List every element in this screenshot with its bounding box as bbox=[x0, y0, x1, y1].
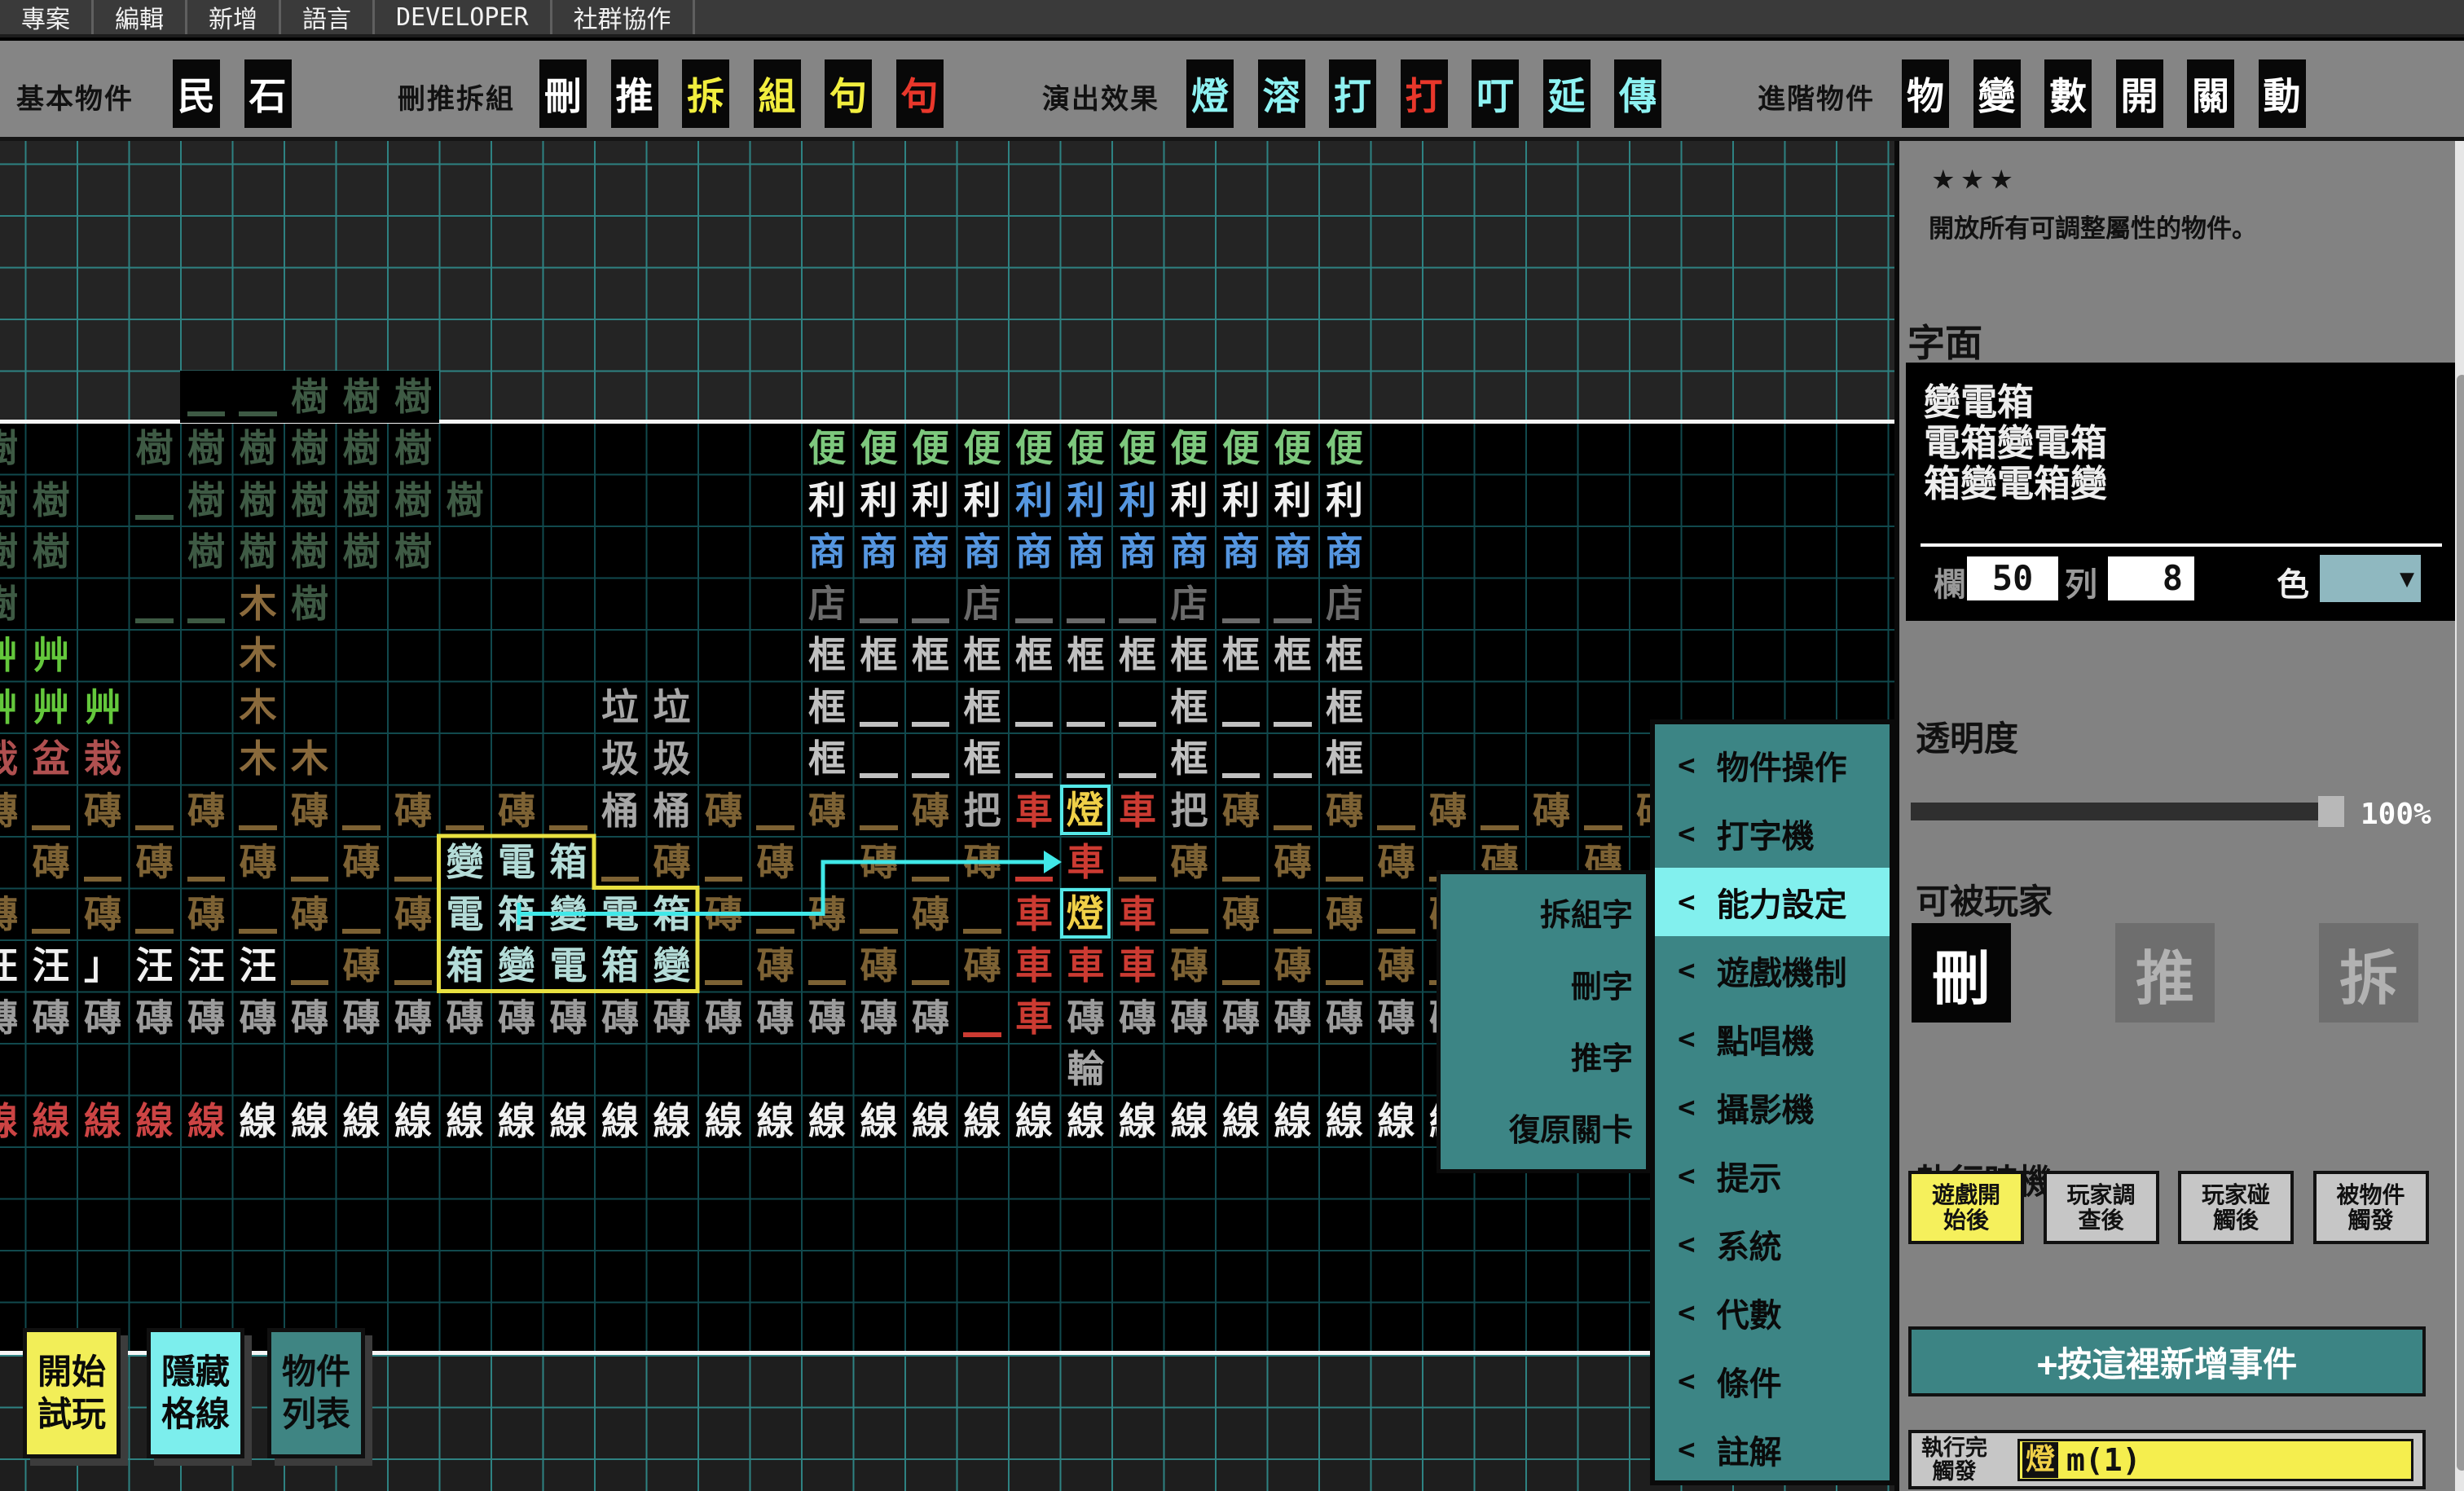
map-tile-＿[interactable]: ＿ bbox=[1577, 785, 1630, 837]
map-tile-線[interactable]: 線 bbox=[232, 1095, 284, 1147]
context-menu-item-物件操作[interactable]: <物件操作 bbox=[1655, 731, 1890, 799]
map-tile-便[interactable]: 便 bbox=[853, 422, 905, 474]
map-tile-樹[interactable]: 樹 bbox=[232, 526, 284, 578]
map-tile-線[interactable]: 線 bbox=[336, 1095, 388, 1147]
toolbar-button-燈-20[interactable]: 燈 bbox=[1186, 59, 1234, 128]
map-tile-便[interactable]: 便 bbox=[1215, 422, 1267, 474]
map-tile-磚[interactable]: 磚 bbox=[1215, 888, 1267, 940]
map-tile-框[interactable]: 框 bbox=[1111, 629, 1164, 681]
map-tile-框[interactable]: 框 bbox=[801, 732, 853, 785]
context-menu-item-系統[interactable]: <系統 bbox=[1655, 1210, 1890, 1278]
map-tile-利[interactable]: 利 bbox=[1060, 474, 1112, 526]
map-tile-車[interactable]: 車 bbox=[1111, 785, 1164, 837]
map-tile-商[interactable]: 商 bbox=[1111, 526, 1164, 578]
map-tile-磚[interactable]: 磚 bbox=[0, 785, 25, 837]
map-tile-磚[interactable]: 磚 bbox=[439, 992, 491, 1044]
context-menu-item-打字機[interactable]: <打字機 bbox=[1655, 799, 1890, 868]
map-tile-圾[interactable]: 圾 bbox=[646, 732, 698, 785]
map-tile-＿[interactable]: ＿ bbox=[25, 888, 77, 940]
map-tile-磚[interactable]: 磚 bbox=[697, 992, 750, 1044]
map-tile-線[interactable]: 線 bbox=[439, 1095, 491, 1147]
map-tile-＿[interactable]: ＿ bbox=[387, 836, 439, 888]
map-tile-磚[interactable]: 磚 bbox=[1111, 992, 1164, 1044]
map-tile-利[interactable]: 利 bbox=[904, 474, 957, 526]
map-tile-樹[interactable]: 樹 bbox=[180, 526, 232, 578]
map-tile-車[interactable]: 車 bbox=[1060, 836, 1112, 888]
timing-button-被物件觸發[interactable]: 被物件觸發 bbox=[2313, 1171, 2429, 1244]
map-tile-汪[interactable]: 汪 bbox=[0, 939, 25, 992]
toolbar-button-物-30[interactable]: 物 bbox=[1902, 59, 1949, 128]
menu-item-1[interactable]: 編輯 bbox=[94, 0, 187, 34]
map-tile-變[interactable]: 變 bbox=[491, 939, 543, 992]
panel-scrollbar-thumb[interactable] bbox=[2457, 375, 2464, 1471]
toolbar-button-推-11[interactable]: 推 bbox=[611, 59, 658, 128]
map-tile-商[interactable]: 商 bbox=[853, 526, 905, 578]
map-tile-＿[interactable]: ＿ bbox=[1267, 681, 1319, 733]
map-tile-磚[interactable]: 磚 bbox=[232, 836, 284, 888]
map-tile-＿[interactable]: ＿ bbox=[129, 785, 181, 837]
map-tile-商[interactable]: 商 bbox=[1008, 526, 1060, 578]
toolbar-button-石-01[interactable]: 石 bbox=[244, 59, 292, 128]
face-text-value[interactable]: 變電箱 電箱變電箱 箱變電箱變 bbox=[1924, 382, 2457, 504]
map-tile-樹[interactable]: 樹 bbox=[232, 474, 284, 526]
toolbar-button-民-00[interactable]: 民 bbox=[173, 59, 220, 128]
map-canvas[interactable]: ＿＿樹樹樹樹樹樹樹樹樹樹便便便便便便便便便便便樹樹＿樹樹樹樹樹樹利利利利利利利利… bbox=[0, 141, 1894, 1491]
map-tile-樹[interactable]: 樹 bbox=[25, 526, 77, 578]
color-dropdown[interactable]: ▼ bbox=[2320, 555, 2421, 602]
map-tile-磚[interactable]: 磚 bbox=[957, 836, 1009, 888]
map-tile-桶[interactable]: 桶 bbox=[594, 785, 646, 837]
map-tile-框[interactable]: 框 bbox=[1318, 629, 1371, 681]
map-tile-磚[interactable]: 磚 bbox=[543, 992, 595, 1044]
menu-item-2[interactable]: 新增 bbox=[187, 0, 281, 34]
map-tile-＿[interactable]: ＿ bbox=[957, 888, 1009, 940]
map-tile-磚[interactable]: 磚 bbox=[1318, 992, 1371, 1044]
context-menu-item-提示[interactable]: <提示 bbox=[1655, 1141, 1890, 1210]
map-tile-栽[interactable]: 栽 bbox=[77, 732, 129, 785]
map-tile-磚[interactable]: 磚 bbox=[129, 836, 181, 888]
toolbar-button-動-35[interactable]: 動 bbox=[2259, 59, 2306, 128]
map-tile-＿[interactable]: ＿ bbox=[1008, 578, 1060, 630]
map-tile-＿[interactable]: ＿ bbox=[1008, 836, 1060, 888]
map-tile-車[interactable]: 車 bbox=[1008, 992, 1060, 1044]
map-tile-＿[interactable]: ＿ bbox=[697, 836, 750, 888]
map-tile-＿[interactable]: ＿ bbox=[904, 732, 957, 785]
map-tile-垃[interactable]: 垃 bbox=[646, 681, 698, 733]
map-tile-商[interactable]: 商 bbox=[957, 526, 1009, 578]
toolbar-button-刪-10[interactable]: 刪 bbox=[539, 59, 587, 128]
map-tile-線[interactable]: 線 bbox=[697, 1095, 750, 1147]
submenu-item-復原關卡[interactable]: 復原關卡 bbox=[1441, 1091, 1646, 1163]
map-tile-＿[interactable]: ＿ bbox=[1111, 836, 1164, 888]
map-tile-框[interactable]: 框 bbox=[801, 629, 853, 681]
context-menu-item-條件[interactable]: <條件 bbox=[1655, 1347, 1890, 1415]
rows-input[interactable]: 8 bbox=[2108, 556, 2194, 600]
map-tile-＿[interactable]: ＿ bbox=[129, 888, 181, 940]
context-menu-item-攝影機[interactable]: <攝影機 bbox=[1655, 1073, 1890, 1141]
map-tile-樹[interactable]: 樹 bbox=[387, 526, 439, 578]
map-tile-變[interactable]: 變 bbox=[439, 836, 491, 888]
map-tile-利[interactable]: 利 bbox=[1215, 474, 1267, 526]
map-tile-磚[interactable]: 磚 bbox=[801, 888, 853, 940]
map-tile-利[interactable]: 利 bbox=[1267, 474, 1319, 526]
map-tile-箱[interactable]: 箱 bbox=[543, 836, 595, 888]
map-tile-磚[interactable]: 磚 bbox=[1267, 992, 1319, 1044]
face-text-box[interactable]: 變電箱 電箱變電箱 箱變電箱變 欄 50 列 8 色 ▼ bbox=[1906, 363, 2457, 621]
toolbar-button-打-22[interactable]: 打 bbox=[1329, 59, 1376, 128]
map-tile-樹[interactable]: 樹 bbox=[387, 422, 439, 474]
map-tile-磚[interactable]: 磚 bbox=[957, 939, 1009, 992]
toolbar-button-句-15[interactable]: 句 bbox=[896, 59, 944, 128]
map-tile-樹[interactable]: 樹 bbox=[284, 371, 336, 423]
map-tile-磚[interactable]: 磚 bbox=[853, 836, 905, 888]
submenu-item-推字[interactable]: 推字 bbox=[1441, 1019, 1646, 1091]
map-tile-車[interactable]: 車 bbox=[1111, 939, 1164, 992]
menu-item-4[interactable]: DEVELOPER bbox=[375, 0, 552, 34]
map-tile-汪[interactable]: 汪 bbox=[25, 939, 77, 992]
map-tile-磚[interactable]: 磚 bbox=[853, 939, 905, 992]
map-tile-線[interactable]: 線 bbox=[853, 1095, 905, 1147]
map-tile-＿[interactable]: ＿ bbox=[904, 681, 957, 733]
map-tile-汪[interactable]: 汪 bbox=[180, 939, 232, 992]
map-tile-磚[interactable]: 磚 bbox=[904, 785, 957, 837]
map-tile-栽[interactable]: 栽 bbox=[0, 732, 25, 785]
map-tile-磚[interactable]: 磚 bbox=[77, 785, 129, 837]
opacity-slider-thumb[interactable] bbox=[2318, 796, 2344, 827]
map-tile-＿[interactable]: ＿ bbox=[180, 836, 232, 888]
map-tile-樹[interactable]: 樹 bbox=[336, 474, 388, 526]
map-tile-樹[interactable]: 樹 bbox=[0, 526, 25, 578]
map-tile-線[interactable]: 線 bbox=[1164, 1095, 1216, 1147]
map-tile-輪[interactable]: 輪 bbox=[1060, 1043, 1112, 1095]
map-tile-線[interactable]: 線 bbox=[129, 1095, 181, 1147]
map-tile-磚[interactable]: 磚 bbox=[1422, 785, 1474, 837]
map-tile-線[interactable]: 線 bbox=[904, 1095, 957, 1147]
map-tile-店[interactable]: 店 bbox=[801, 578, 853, 630]
map-tile-樹[interactable]: 樹 bbox=[284, 578, 336, 630]
map-tile-便[interactable]: 便 bbox=[1060, 422, 1112, 474]
map-tile-樹[interactable]: 樹 bbox=[232, 422, 284, 474]
map-tile-＿[interactable]: ＿ bbox=[439, 785, 491, 837]
timing-button-玩家調查後[interactable]: 玩家調查後 bbox=[2044, 1171, 2159, 1244]
map-tile-磚[interactable]: 磚 bbox=[1267, 836, 1319, 888]
map-tile-車[interactable]: 車 bbox=[1008, 939, 1060, 992]
map-tile-商[interactable]: 商 bbox=[1267, 526, 1319, 578]
map-tile-桶[interactable]: 桶 bbox=[646, 785, 698, 837]
ability-button-拆[interactable]: 拆 bbox=[2319, 923, 2418, 1023]
map-tile-框[interactable]: 框 bbox=[801, 681, 853, 733]
map-tile-＿[interactable]: ＿ bbox=[750, 785, 802, 837]
map-tile-木[interactable]: 木 bbox=[284, 732, 336, 785]
map-tile-木[interactable]: 木 bbox=[232, 732, 284, 785]
after-exec-field[interactable]: 燈 m(1) bbox=[2017, 1439, 2413, 1481]
map-tile-商[interactable]: 商 bbox=[1164, 526, 1216, 578]
map-tile-框[interactable]: 框 bbox=[1267, 629, 1319, 681]
opacity-slider-track[interactable] bbox=[1911, 803, 2320, 820]
map-tile-磚[interactable]: 磚 bbox=[387, 992, 439, 1044]
map-tile-＿[interactable]: ＿ bbox=[1267, 578, 1319, 630]
map-tile-磚[interactable]: 磚 bbox=[1164, 992, 1216, 1044]
map-tile-垃[interactable]: 垃 bbox=[594, 681, 646, 733]
map-tile-磚[interactable]: 磚 bbox=[904, 992, 957, 1044]
map-tile-利[interactable]: 利 bbox=[1318, 474, 1371, 526]
map-tile-商[interactable]: 商 bbox=[1060, 526, 1112, 578]
map-button-開始試玩[interactable]: 開始試玩 bbox=[23, 1328, 121, 1458]
map-tile-磚[interactable]: 磚 bbox=[646, 992, 698, 1044]
map-tile-線[interactable]: 線 bbox=[543, 1095, 595, 1147]
map-tile-磚[interactable]: 磚 bbox=[180, 785, 232, 837]
map-tile-＿[interactable]: ＿ bbox=[232, 888, 284, 940]
map-tile-樹[interactable]: 樹 bbox=[387, 371, 439, 423]
map-tile-車[interactable]: 車 bbox=[1111, 888, 1164, 940]
map-tile-便[interactable]: 便 bbox=[1111, 422, 1164, 474]
map-tile-框[interactable]: 框 bbox=[1060, 629, 1112, 681]
map-tile-樹[interactable]: 樹 bbox=[439, 474, 491, 526]
map-tile-便[interactable]: 便 bbox=[801, 422, 853, 474]
map-tile-樹[interactable]: 樹 bbox=[387, 474, 439, 526]
map-tile-磚[interactable]: 磚 bbox=[180, 992, 232, 1044]
menu-item-0[interactable]: 專案 bbox=[0, 0, 94, 34]
map-tile-樹[interactable]: 樹 bbox=[180, 474, 232, 526]
map-tile-樹[interactable]: 樹 bbox=[336, 371, 388, 423]
toolbar-button-溶-21[interactable]: 溶 bbox=[1258, 59, 1305, 128]
toolbar-button-延-25[interactable]: 延 bbox=[1543, 59, 1591, 128]
map-tile-樹[interactable]: 樹 bbox=[284, 422, 336, 474]
map-tile-＿[interactable]: ＿ bbox=[77, 836, 129, 888]
map-tile-樹[interactable]: 樹 bbox=[129, 422, 181, 474]
map-tile-＿[interactable]: ＿ bbox=[957, 992, 1009, 1044]
map-tile-艸[interactable]: 艸 bbox=[0, 629, 25, 681]
map-tile-艸[interactable]: 艸 bbox=[25, 681, 77, 733]
map-tile-＿[interactable]: ＿ bbox=[25, 785, 77, 837]
timing-button-遊戲開始後[interactable]: 遊戲開始後 bbox=[1908, 1171, 2024, 1244]
toolbar-button-變-31[interactable]: 變 bbox=[1973, 59, 2021, 128]
map-tile-＿[interactable]: ＿ bbox=[697, 939, 750, 992]
map-tile-＿[interactable]: ＿ bbox=[232, 371, 284, 423]
map-tile-樹[interactable]: 樹 bbox=[25, 474, 77, 526]
map-tile-磚[interactable]: 磚 bbox=[284, 785, 336, 837]
map-tile-磚[interactable]: 磚 bbox=[1164, 939, 1216, 992]
map-tile-磚[interactable]: 磚 bbox=[594, 992, 646, 1044]
map-tile-＿[interactable]: ＿ bbox=[1474, 785, 1526, 837]
map-tile-店[interactable]: 店 bbox=[1164, 578, 1216, 630]
map-tile-盆[interactable]: 盆 bbox=[25, 732, 77, 785]
map-tile-線[interactable]: 線 bbox=[750, 1095, 802, 1147]
submenu-item-刪字[interactable]: 刪字 bbox=[1441, 948, 1646, 1019]
context-menu-item-點唱機[interactable]: <點唱機 bbox=[1655, 1005, 1890, 1073]
map-tile-磚[interactable]: 磚 bbox=[750, 992, 802, 1044]
map-tile-變[interactable]: 變 bbox=[543, 888, 595, 940]
map-tile-＿[interactable]: ＿ bbox=[904, 836, 957, 888]
map-tile-線[interactable]: 線 bbox=[387, 1095, 439, 1147]
map-tile-利[interactable]: 利 bbox=[1008, 474, 1060, 526]
map-tile-線[interactable]: 線 bbox=[180, 1095, 232, 1147]
map-tile-＿[interactable]: ＿ bbox=[1111, 578, 1164, 630]
map-button-物件列表[interactable]: 物件列表 bbox=[267, 1328, 365, 1458]
map-tile-磚[interactable]: 磚 bbox=[491, 785, 543, 837]
map-tile-磚[interactable]: 磚 bbox=[853, 992, 905, 1044]
map-tile-＿[interactable]: ＿ bbox=[853, 578, 905, 630]
map-tile-＿[interactable]: ＿ bbox=[1111, 732, 1164, 785]
context-menu-item-遊戲機制[interactable]: <遊戲機制 bbox=[1655, 936, 1890, 1005]
toolbar-button-傳-26[interactable]: 傳 bbox=[1614, 59, 1661, 128]
map-tile-＿[interactable]: ＿ bbox=[853, 785, 905, 837]
map-tile-＿[interactable]: ＿ bbox=[853, 732, 905, 785]
map-tile-樹[interactable]: 樹 bbox=[180, 422, 232, 474]
map-tile-＿[interactable]: ＿ bbox=[180, 578, 232, 630]
map-tile-＿[interactable]: ＿ bbox=[1371, 785, 1423, 837]
map-tile-磚[interactable]: 磚 bbox=[697, 785, 750, 837]
toolbar-button-數-32[interactable]: 數 bbox=[2044, 59, 2092, 128]
map-tile-＿[interactable]: ＿ bbox=[1318, 939, 1371, 992]
map-tile-燈[interactable]: 燈 bbox=[1060, 888, 1111, 939]
map-tile-利[interactable]: 利 bbox=[1111, 474, 1164, 526]
map-tile-艸[interactable]: 艸 bbox=[77, 681, 129, 733]
menu-item-5[interactable]: 社群協作 bbox=[552, 0, 695, 34]
map-tile-樹[interactable]: 樹 bbox=[336, 422, 388, 474]
map-tile-把[interactable]: 把 bbox=[957, 785, 1009, 837]
map-tile-＿[interactable]: ＿ bbox=[1215, 681, 1267, 733]
map-tile-＿[interactable]: ＿ bbox=[543, 785, 595, 837]
map-tile-線[interactable]: 線 bbox=[1318, 1095, 1371, 1147]
map-tile-樹[interactable]: 樹 bbox=[336, 526, 388, 578]
map-tile-＿[interactable]: ＿ bbox=[1111, 681, 1164, 733]
map-tile-＿[interactable]: ＿ bbox=[904, 578, 957, 630]
map-tile-把[interactable]: 把 bbox=[1164, 785, 1216, 837]
map-tile-框[interactable]: 框 bbox=[853, 629, 905, 681]
map-tile-利[interactable]: 利 bbox=[801, 474, 853, 526]
map-tile-磚[interactable]: 磚 bbox=[646, 836, 698, 888]
map-tile-樹[interactable]: 樹 bbox=[0, 578, 25, 630]
map-tile-磚[interactable]: 磚 bbox=[0, 888, 25, 940]
map-tile-圾[interactable]: 圾 bbox=[594, 732, 646, 785]
map-tile-磚[interactable]: 磚 bbox=[77, 888, 129, 940]
map-tile-＿[interactable]: ＿ bbox=[129, 474, 181, 526]
toolbar-button-開-33[interactable]: 開 bbox=[2116, 59, 2163, 128]
map-tile-磚[interactable]: 磚 bbox=[336, 836, 388, 888]
map-tile-磚[interactable]: 磚 bbox=[387, 785, 439, 837]
timing-button-玩家碰觸後[interactable]: 玩家碰觸後 bbox=[2178, 1171, 2294, 1244]
map-tile-線[interactable]: 線 bbox=[1215, 1095, 1267, 1147]
toolbar-button-叮-24[interactable]: 叮 bbox=[1472, 59, 1519, 128]
context-menu-item-註解[interactable]: <註解 bbox=[1655, 1415, 1890, 1484]
map-tile-艸[interactable]: 艸 bbox=[0, 681, 25, 733]
map-tile-電[interactable]: 電 bbox=[594, 888, 646, 940]
map-tile-店[interactable]: 店 bbox=[957, 578, 1009, 630]
columns-input[interactable]: 50 bbox=[1967, 556, 2058, 600]
map-tile-＿[interactable]: ＿ bbox=[904, 939, 957, 992]
map-tile-磚[interactable]: 磚 bbox=[904, 888, 957, 940]
map-tile-汪[interactable]: 汪 bbox=[129, 939, 181, 992]
map-tile-磚[interactable]: 磚 bbox=[801, 785, 853, 837]
map-tile-磚[interactable]: 磚 bbox=[1371, 939, 1423, 992]
map-tile-磚[interactable]: 磚 bbox=[284, 992, 336, 1044]
map-tile-＿[interactable]: ＿ bbox=[336, 785, 388, 837]
map-tile-線[interactable]: 線 bbox=[1267, 1095, 1319, 1147]
map-tile-車[interactable]: 車 bbox=[1008, 888, 1060, 940]
map-tile-線[interactable]: 線 bbox=[25, 1095, 77, 1147]
map-tile-便[interactable]: 便 bbox=[904, 422, 957, 474]
map-tile-磚[interactable]: 磚 bbox=[1525, 785, 1577, 837]
map-tile-線[interactable]: 線 bbox=[0, 1095, 25, 1147]
menu-item-3[interactable]: 語言 bbox=[281, 0, 375, 34]
map-tile-車[interactable]: 車 bbox=[1060, 939, 1112, 992]
map-tile-磚[interactable]: 磚 bbox=[801, 992, 853, 1044]
map-tile-＿[interactable]: ＿ bbox=[853, 681, 905, 733]
map-tile-便[interactable]: 便 bbox=[1318, 422, 1371, 474]
map-tile-＿[interactable]: ＿ bbox=[853, 888, 905, 940]
map-tile-箱[interactable]: 箱 bbox=[646, 888, 698, 940]
map-tile-磚[interactable]: 磚 bbox=[336, 939, 388, 992]
map-tile-線[interactable]: 線 bbox=[1111, 1095, 1164, 1147]
map-tile-磚[interactable]: 磚 bbox=[1371, 836, 1423, 888]
context-menu-item-代數[interactable]: <代數 bbox=[1655, 1278, 1890, 1347]
map-tile-框[interactable]: 框 bbox=[957, 681, 1009, 733]
map-tile-框[interactable]: 框 bbox=[1318, 681, 1371, 733]
map-tile-線[interactable]: 線 bbox=[646, 1095, 698, 1147]
map-tile-商[interactable]: 商 bbox=[801, 526, 853, 578]
map-tile-便[interactable]: 便 bbox=[1164, 422, 1216, 474]
toolbar-button-組-13[interactable]: 組 bbox=[754, 59, 801, 128]
map-tile-樹[interactable]: 樹 bbox=[284, 474, 336, 526]
map-tile-框[interactable]: 框 bbox=[904, 629, 957, 681]
map-button-隱藏格線[interactable]: 隱藏格線 bbox=[147, 1328, 244, 1458]
map-tile-磚[interactable]: 磚 bbox=[1318, 785, 1371, 837]
map-tile-箱[interactable]: 箱 bbox=[491, 888, 543, 940]
toolbar-button-拆-12[interactable]: 拆 bbox=[682, 59, 729, 128]
map-tile-磚[interactable]: 磚 bbox=[25, 836, 77, 888]
map-tile-＿[interactable]: ＿ bbox=[750, 888, 802, 940]
map-tile-＿[interactable]: ＿ bbox=[801, 939, 853, 992]
map-tile-磚[interactable]: 磚 bbox=[232, 992, 284, 1044]
map-tile-＿[interactable]: ＿ bbox=[1008, 681, 1060, 733]
map-tile-變[interactable]: 變 bbox=[646, 939, 698, 992]
map-tile-磚[interactable]: 磚 bbox=[1215, 992, 1267, 1044]
toolbar-button-關-34[interactable]: 關 bbox=[2187, 59, 2234, 128]
map-tile-樹[interactable]: 樹 bbox=[284, 526, 336, 578]
map-tile-＿[interactable]: ＿ bbox=[180, 371, 232, 423]
map-tile-線[interactable]: 線 bbox=[801, 1095, 853, 1147]
map-tile-電[interactable]: 電 bbox=[543, 939, 595, 992]
map-tile-利[interactable]: 利 bbox=[853, 474, 905, 526]
map-tile-＿[interactable]: ＿ bbox=[1060, 681, 1112, 733]
map-tile-框[interactable]: 框 bbox=[1318, 732, 1371, 785]
map-tile-框[interactable]: 框 bbox=[1164, 732, 1216, 785]
map-tile-＿[interactable]: ＿ bbox=[387, 939, 439, 992]
map-tile-車[interactable]: 車 bbox=[1008, 785, 1060, 837]
map-tile-磚[interactable]: 磚 bbox=[1267, 939, 1319, 992]
toolbar-button-句-14[interactable]: 句 bbox=[825, 59, 872, 128]
map-tile-木[interactable]: 木 bbox=[232, 629, 284, 681]
map-tile-木[interactable]: 木 bbox=[232, 681, 284, 733]
map-tile-便[interactable]: 便 bbox=[1008, 422, 1060, 474]
map-tile-樹[interactable]: 樹 bbox=[0, 422, 25, 474]
map-tile-磚[interactable]: 磚 bbox=[336, 992, 388, 1044]
map-tile-利[interactable]: 利 bbox=[957, 474, 1009, 526]
map-tile-磚[interactable]: 磚 bbox=[0, 992, 25, 1044]
map-tile-＿[interactable]: ＿ bbox=[284, 939, 336, 992]
map-tile-線[interactable]: 線 bbox=[594, 1095, 646, 1147]
map-tile-＿[interactable]: ＿ bbox=[1215, 836, 1267, 888]
add-event-button[interactable]: +按這裡新增事件 bbox=[1908, 1326, 2426, 1396]
map-tile-＿[interactable]: ＿ bbox=[336, 888, 388, 940]
map-tile-燈[interactable]: 燈 bbox=[1060, 785, 1111, 835]
map-tile-＿[interactable]: ＿ bbox=[1267, 785, 1319, 837]
map-tile-箱[interactable]: 箱 bbox=[594, 939, 646, 992]
map-tile-磚[interactable]: 磚 bbox=[491, 992, 543, 1044]
context-menu-item-能力設定[interactable]: <能力設定 bbox=[1655, 868, 1890, 936]
map-tile-磚[interactable]: 磚 bbox=[284, 888, 336, 940]
